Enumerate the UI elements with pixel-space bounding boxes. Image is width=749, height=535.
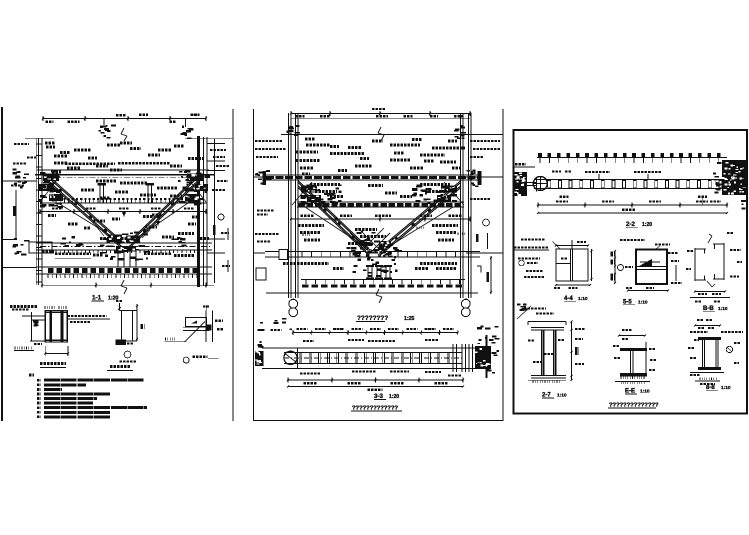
svg-text:1:10: 1:10 bbox=[721, 385, 731, 391]
svg-text:1:10: 1:10 bbox=[578, 296, 588, 302]
svg-text:1:10: 1:10 bbox=[638, 300, 648, 306]
svg-text:1:10: 1:10 bbox=[718, 306, 728, 312]
svg-text:1:10: 1:10 bbox=[640, 389, 650, 395]
svg-text:1:20: 1:20 bbox=[389, 394, 399, 400]
svg-text:1:25: 1:25 bbox=[404, 316, 414, 322]
svg-text:1:20: 1:20 bbox=[642, 222, 652, 228]
svg-text:1:10: 1:10 bbox=[557, 393, 567, 399]
svg-text:????????: ???????? bbox=[357, 315, 388, 322]
